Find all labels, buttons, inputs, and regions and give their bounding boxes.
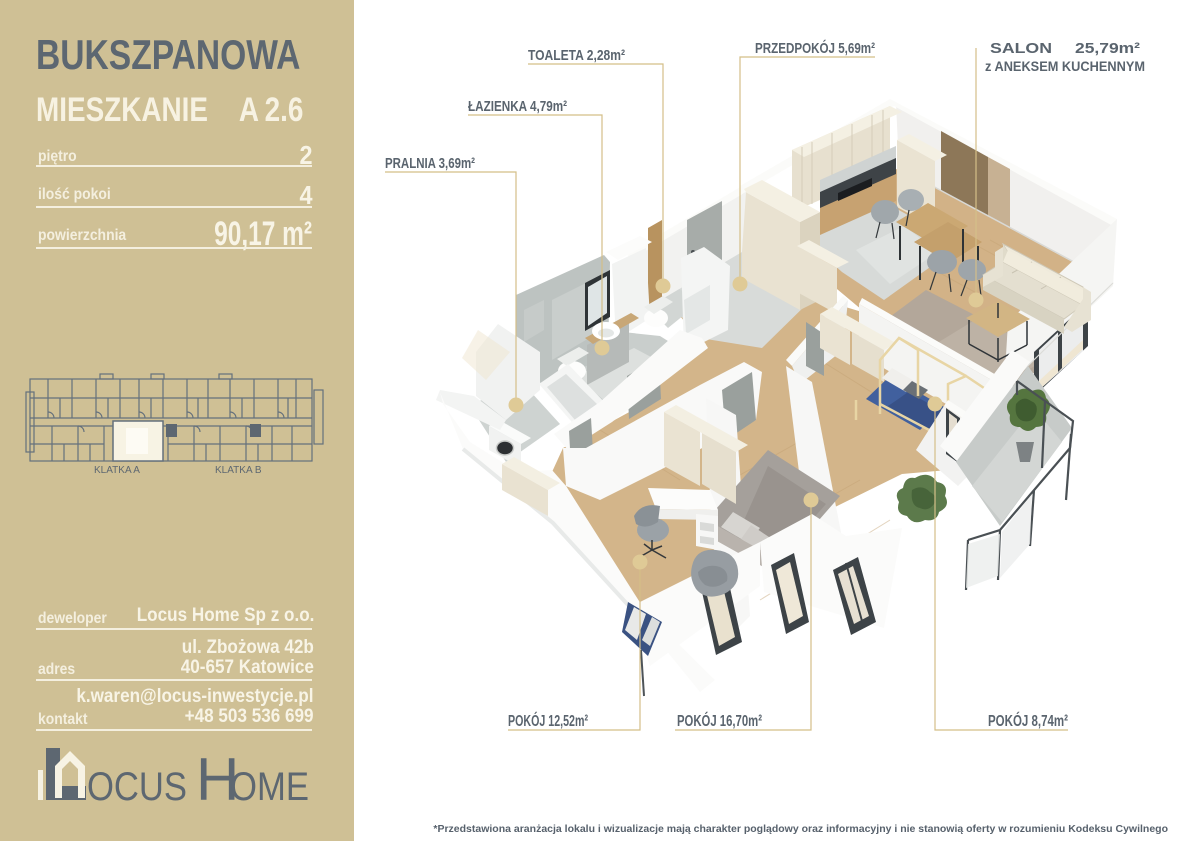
svg-text:POKÓJ 8,74m²: POKÓJ 8,74m² xyxy=(988,711,1068,730)
svg-text:POKÓJ 12,52m²: POKÓJ 12,52m² xyxy=(508,711,588,730)
svg-text:TOALETA 2,28m²: TOALETA 2,28m² xyxy=(528,47,625,64)
svg-text:25,79m²: 25,79m² xyxy=(1075,40,1140,57)
svg-text:ŁAZIENKA 4,79m²: ŁAZIENKA 4,79m² xyxy=(468,98,567,115)
svg-text:z ANEKSEM KUCHENNYM: z ANEKSEM KUCHENNYM xyxy=(985,58,1145,74)
svg-text:SALON: SALON xyxy=(990,40,1052,57)
svg-text:PRZEDPOKÓJ 5,69m²: PRZEDPOKÓJ 5,69m² xyxy=(755,39,875,57)
svg-text:POKÓJ 16,70m²: POKÓJ 16,70m² xyxy=(677,711,762,730)
svg-text:*Przedstawiona aranżacja lokal: *Przedstawiona aranżacja lokalu i wizual… xyxy=(433,823,1168,835)
svg-text:PRALNIA 3,69m²: PRALNIA 3,69m² xyxy=(385,155,475,172)
